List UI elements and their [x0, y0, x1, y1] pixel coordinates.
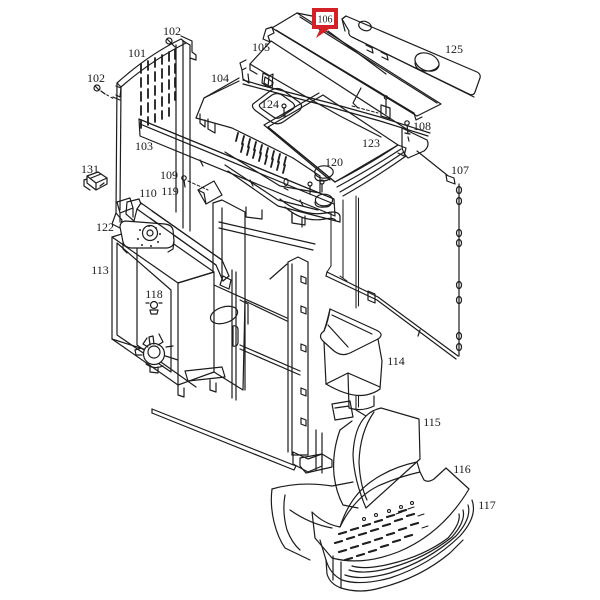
svg-text:124: 124 [261, 97, 279, 111]
svg-text:115: 115 [423, 415, 441, 429]
svg-text:119: 119 [161, 184, 179, 198]
svg-text:103: 103 [135, 139, 153, 153]
svg-text:106: 106 [318, 15, 333, 26]
svg-text:107: 107 [451, 163, 469, 177]
svg-text:122: 122 [96, 220, 114, 234]
svg-text:125: 125 [445, 42, 463, 56]
svg-text:109: 109 [160, 168, 178, 182]
svg-text:114: 114 [387, 354, 405, 368]
svg-text:110: 110 [139, 186, 157, 200]
svg-text:108: 108 [413, 119, 431, 133]
svg-text:117: 117 [478, 498, 496, 512]
svg-text:101: 101 [128, 46, 146, 60]
svg-text:104: 104 [211, 71, 229, 85]
svg-text:131: 131 [81, 162, 99, 176]
svg-text:102: 102 [163, 24, 181, 38]
svg-text:113: 113 [91, 263, 109, 277]
svg-text:105: 105 [252, 40, 270, 54]
svg-text:120: 120 [325, 155, 343, 169]
svg-text:123: 123 [362, 136, 380, 150]
svg-text:116: 116 [453, 462, 471, 476]
svg-text:118: 118 [145, 287, 163, 301]
svg-text:102: 102 [87, 71, 105, 85]
